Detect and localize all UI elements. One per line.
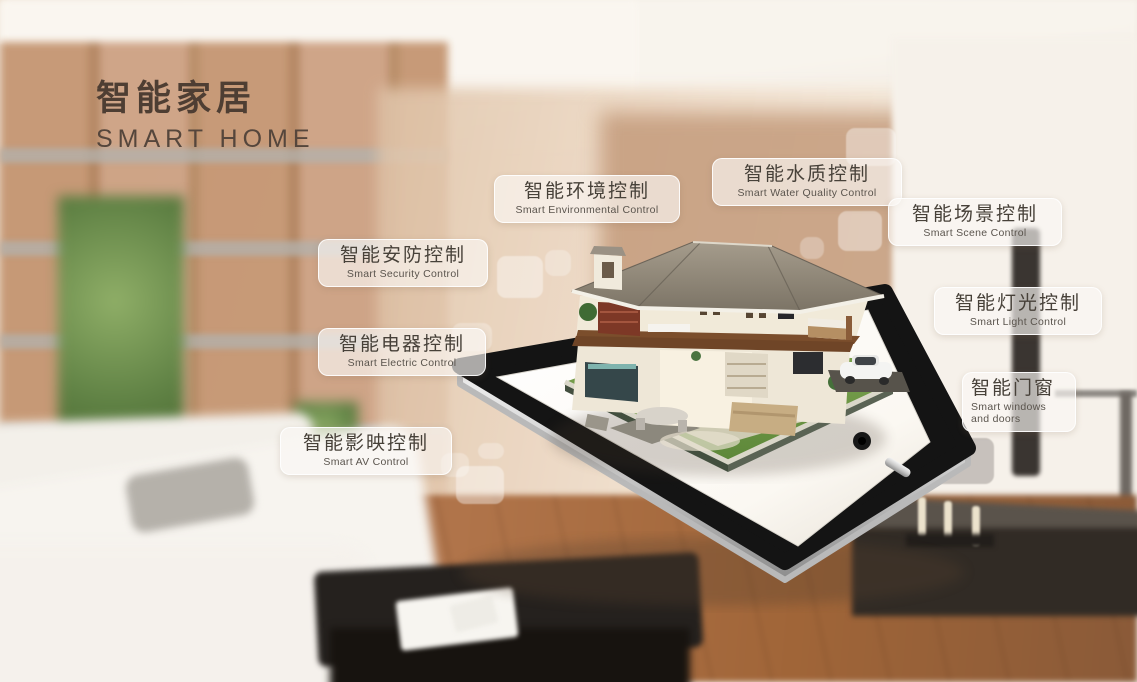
wall-tv — [1012, 228, 1040, 476]
title-english: SMART HOME — [96, 125, 315, 154]
label-cn: 智能环境控制 — [503, 181, 671, 203]
page-title: 智能家居 SMART HOME — [96, 80, 315, 154]
tablet-shadow — [460, 538, 964, 606]
label-environmental-control: 智能环境控制 Smart Environmental Control — [494, 175, 680, 223]
label-light-control: 智能灯光控制 Smart Light Control — [934, 287, 1102, 335]
label-av-control: 智能影映控制 Smart AV Control — [280, 427, 452, 475]
label-en: Smart Electric Control — [327, 357, 477, 369]
label-en: Smart windows and doors — [971, 401, 1067, 425]
label-en: Smart Scene Control — [897, 227, 1053, 239]
label-windows-doors: 智能门窗 Smart windows and doors — [962, 372, 1076, 432]
label-scene-control: 智能场景控制 Smart Scene Control — [888, 198, 1062, 246]
label-en: Smart AV Control — [289, 456, 443, 468]
sofa-chaise — [0, 545, 370, 682]
label-en: Smart Water Quality Control — [721, 187, 893, 199]
title-chinese: 智能家居 — [96, 80, 315, 119]
label-cn: 智能水质控制 — [721, 164, 893, 186]
label-en: Smart Environmental Control — [503, 204, 671, 216]
label-electric-control: 智能电器控制 Smart Electric Control — [318, 328, 486, 376]
tablet-house-illustration — [420, 225, 1010, 620]
label-en: Smart Light Control — [943, 316, 1093, 328]
label-cn: 智能场景控制 — [897, 204, 1053, 226]
label-security-control: 智能安防控制 Smart Security Control — [318, 239, 488, 287]
label-cn: 智能电器控制 — [327, 334, 477, 356]
label-water-quality-control: 智能水质控制 Smart Water Quality Control — [712, 158, 902, 206]
label-en: Smart Security Control — [327, 268, 479, 280]
label-cn: 智能安防控制 — [327, 245, 479, 267]
smart-home-poster: 智能家居 SMART HOME 智能环境控制 Smart Environment… — [0, 0, 1137, 682]
label-cn: 智能灯光控制 — [943, 293, 1093, 315]
label-cn: 智能影映控制 — [289, 433, 443, 455]
label-cn: 智能门窗 — [971, 378, 1067, 400]
